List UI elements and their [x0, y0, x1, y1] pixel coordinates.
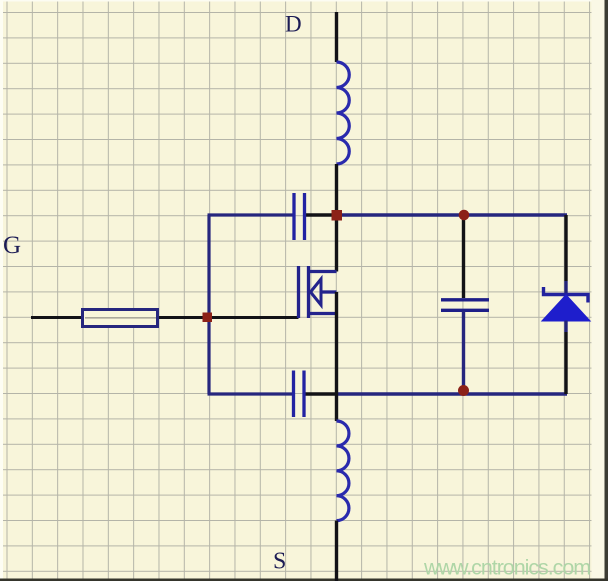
svg-text:D: D — [285, 12, 302, 37]
svg-text:G: G — [3, 232, 21, 259]
svg-text:S: S — [273, 549, 286, 575]
svg-text:www.cntronics.com: www.cntronics.com — [423, 556, 590, 580]
